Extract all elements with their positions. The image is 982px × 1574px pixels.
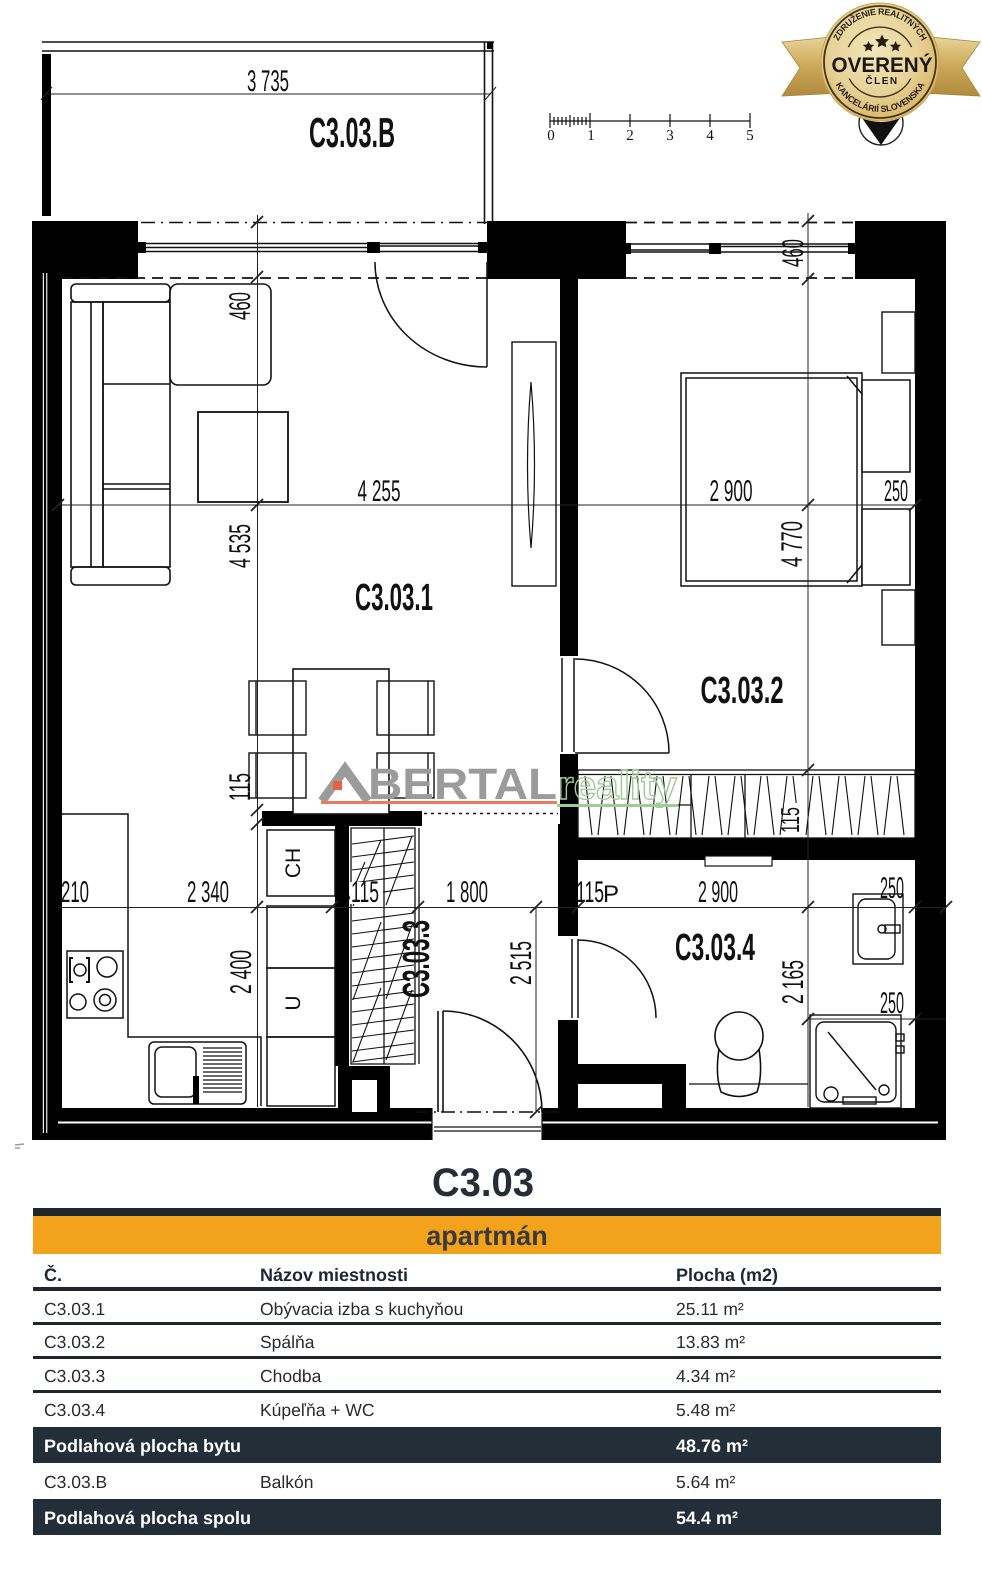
svg-text:250: 250 — [880, 872, 904, 905]
svg-text:Spálňa: Spálňa — [260, 1332, 315, 1352]
svg-text:4: 4 — [706, 128, 714, 144]
svg-text:C3.03.4: C3.03.4 — [44, 1400, 106, 1420]
svg-text:48.76 m²: 48.76 m² — [676, 1436, 748, 1456]
svg-text:apartmán: apartmán — [426, 1221, 548, 1251]
svg-text:5: 5 — [746, 128, 754, 144]
svg-text:U: U — [282, 995, 305, 1010]
svg-text:4.34 m²: 4.34 m² — [676, 1366, 735, 1386]
svg-text:2 900: 2 900 — [698, 876, 738, 909]
svg-text:115: 115 — [351, 876, 379, 909]
svg-text:25.11 m²: 25.11 m² — [676, 1299, 744, 1319]
svg-text:CH: CH — [282, 848, 305, 878]
svg-text:460: 460 — [224, 292, 257, 320]
svg-text:C3.03.2: C3.03.2 — [701, 670, 784, 712]
svg-text:250: 250 — [884, 475, 908, 508]
svg-text:OVERENÝ: OVERENÝ — [832, 53, 933, 77]
svg-text:Obývacia izba s kuchyňou: Obývacia izba s kuchyňou — [260, 1299, 463, 1319]
svg-text:C3.03.1: C3.03.1 — [355, 577, 433, 619]
svg-text:C3.03.B: C3.03.B — [309, 109, 395, 156]
svg-text:3: 3 — [666, 128, 674, 144]
svg-text:2 165: 2 165 — [777, 960, 810, 1004]
svg-text:C3.03.3: C3.03.3 — [396, 920, 438, 998]
svg-text:250: 250 — [880, 987, 904, 1020]
svg-text:1: 1 — [587, 128, 595, 144]
svg-text:ČLEN: ČLEN — [865, 75, 898, 87]
svg-text:Názov miestnosti: Názov miestnosti — [260, 1265, 408, 1285]
svg-text:Chodba: Chodba — [260, 1366, 322, 1386]
svg-text:P: P — [603, 881, 619, 908]
svg-text:reality: reality — [558, 764, 678, 808]
svg-text:Podlahová plocha bytu: Podlahová plocha bytu — [44, 1436, 241, 1456]
svg-text:115: 115 — [576, 876, 604, 909]
svg-text:4 535: 4 535 — [224, 524, 257, 568]
svg-text:460: 460 — [777, 239, 810, 267]
svg-text:54.4 m²: 54.4 m² — [676, 1508, 738, 1528]
svg-text:Č.: Č. — [44, 1264, 62, 1285]
svg-text:Balkón: Balkón — [260, 1472, 314, 1492]
svg-text:Podlahová plocha spolu: Podlahová plocha spolu — [44, 1508, 251, 1528]
svg-text:3 735: 3 735 — [247, 65, 289, 98]
svg-text:C3.03.3: C3.03.3 — [44, 1366, 105, 1386]
svg-text:13.83 m²: 13.83 m² — [676, 1332, 745, 1352]
svg-text:210: 210 — [61, 876, 89, 909]
svg-text:C3.03.4: C3.03.4 — [675, 927, 755, 969]
svg-text:Kúpeľňa + WC: Kúpeľňa + WC — [260, 1400, 375, 1420]
svg-text:5.48 m²: 5.48 m² — [676, 1400, 735, 1420]
svg-text:1 800: 1 800 — [446, 876, 488, 909]
svg-text:Plocha (m2): Plocha (m2) — [676, 1265, 778, 1285]
svg-text:5.64 m²: 5.64 m² — [676, 1472, 735, 1492]
svg-text:0: 0 — [547, 128, 555, 144]
svg-text:115: 115 — [775, 807, 805, 833]
svg-text:C3.03.B: C3.03.B — [44, 1472, 107, 1492]
svg-text:2 340: 2 340 — [187, 876, 229, 909]
svg-text:2: 2 — [626, 128, 634, 144]
svg-text:C3.03.1: C3.03.1 — [44, 1299, 105, 1319]
svg-text:4 255: 4 255 — [358, 475, 401, 508]
svg-text:C3.03.2: C3.03.2 — [44, 1332, 105, 1352]
svg-text:2 400: 2 400 — [225, 950, 258, 994]
svg-text:C3.03: C3.03 — [432, 1161, 534, 1205]
svg-text:2 515: 2 515 — [505, 941, 538, 985]
svg-text:2 900: 2 900 — [710, 475, 753, 508]
svg-text:115: 115 — [224, 773, 257, 801]
svg-text:4 770: 4 770 — [776, 521, 809, 567]
